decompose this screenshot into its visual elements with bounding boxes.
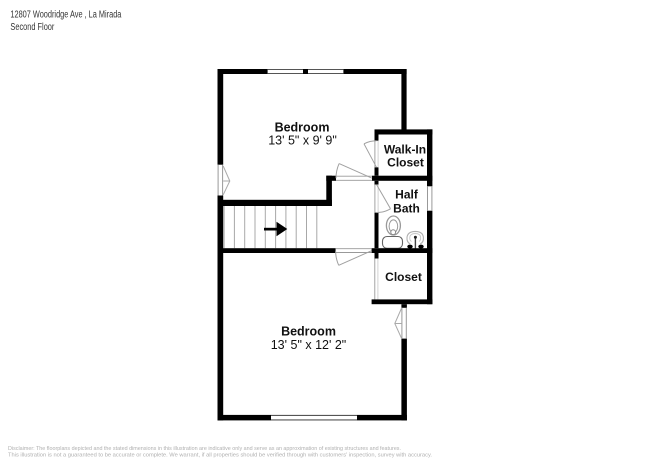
svg-text:12807 Woodridge Ave , La Mirad: 12807 Woodridge Ave , La Mirada [10, 9, 121, 20]
svg-text:13' 5" x 9' 9": 13' 5" x 9' 9" [268, 134, 337, 148]
svg-text:13' 5" x 12' 2": 13' 5" x 12' 2" [271, 338, 347, 352]
svg-text:Bath: Bath [393, 202, 420, 216]
svg-text:Half: Half [395, 188, 419, 202]
svg-text:Bedroom: Bedroom [275, 121, 330, 135]
svg-text:This illustration is not a gua: This illustration is not a guaranteed to… [8, 453, 432, 459]
svg-text:Second Floor: Second Floor [10, 22, 54, 33]
svg-text:Closet: Closet [385, 270, 422, 284]
svg-text:Bedroom: Bedroom [281, 325, 336, 339]
svg-text:Walk-In: Walk-In [384, 143, 426, 157]
svg-text:Disclaimer: The floorplans dep: Disclaimer: The floorplans depicted and … [8, 446, 401, 452]
svg-text:Closet: Closet [387, 156, 424, 170]
